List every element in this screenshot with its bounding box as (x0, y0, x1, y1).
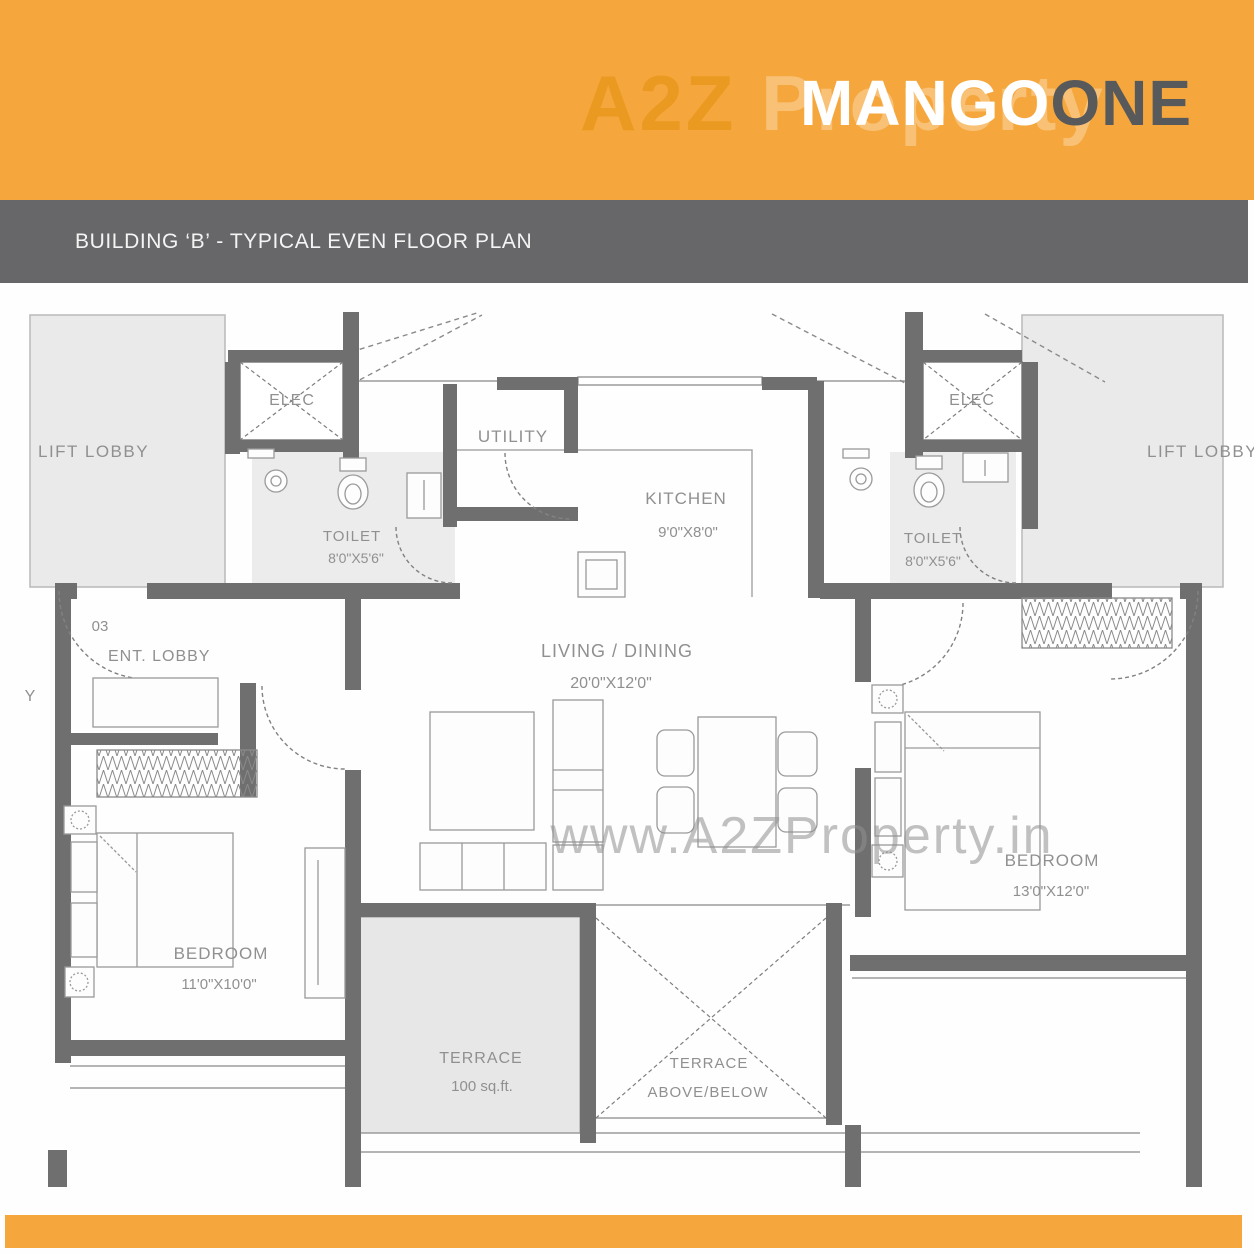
edge-cutoff-label: Y (25, 688, 36, 705)
unit-number-label: 03 (92, 618, 109, 635)
room-label-toilet-left: TOILET (323, 528, 381, 545)
floor-plan-drawing: www.A2ZProperty.in LIFT LOBBY LIFT LOBBY… (0, 0, 1254, 1254)
room-label-terrace-above-1: TERRACE (670, 1055, 749, 1072)
wc-tank-right (916, 456, 942, 469)
bedside-table (71, 903, 97, 957)
wall-segment (48, 1150, 67, 1187)
room-dims-toilet-right: 8'0"X5'6" (905, 553, 961, 569)
bedroom-right-door-arc (878, 603, 963, 688)
room-label-elec-right: ELEC (949, 392, 995, 409)
room-label-terrace: TERRACE (439, 1050, 522, 1067)
wall-segment (345, 590, 361, 690)
wall-segment (1186, 590, 1202, 1187)
wall-segment (228, 350, 359, 362)
room-dims-living-dining: 20'0"X12'0" (570, 675, 652, 692)
room-area-terrace: 100 sq.ft. (451, 1078, 513, 1095)
wall-segment (443, 507, 578, 521)
room-label-elec-left: ELEC (269, 392, 315, 409)
wall-segment (147, 583, 460, 599)
footer-band (5, 1215, 1242, 1248)
wall-segment (497, 377, 578, 390)
wall-segment (345, 770, 361, 917)
wall-segment (850, 955, 1202, 971)
wall-segment (905, 440, 1022, 452)
basin-icon-left (265, 470, 287, 492)
bedside-table (875, 722, 901, 772)
wall-segment (580, 903, 596, 1143)
kitchen-sink-basin (586, 560, 617, 589)
room-label-terrace-above-2: ABOVE/BELOW (647, 1084, 768, 1101)
wc-tank-left (340, 458, 366, 471)
wall-segment (225, 362, 240, 454)
rug (430, 712, 534, 830)
wall-segment (63, 733, 218, 745)
wall-segment (343, 312, 359, 458)
fan-box (64, 806, 96, 834)
living-left-door-arc (262, 686, 345, 769)
fan-box (872, 685, 903, 713)
room-label-bedroom-left: BEDROOM (174, 944, 269, 963)
wall-tick (843, 449, 869, 458)
cabinet-left (305, 848, 345, 998)
wardrobe-left (97, 750, 257, 797)
wall-segment (55, 1040, 360, 1056)
room-dims-toilet-left: 8'0"X5'6" (328, 550, 384, 566)
wall-segment (443, 384, 457, 527)
room-label-ent-lobby: ENT. LOBBY (108, 648, 210, 665)
room-label-living-dining: LIVING / DINING (541, 641, 693, 661)
basin-icon-right (850, 468, 872, 490)
room-label-lift-lobby-left: LIFT LOBBY (38, 442, 149, 461)
room-dims-bedroom-left: 11'0"X10'0" (181, 976, 256, 993)
dining-chair (778, 732, 817, 776)
wall-tick (248, 449, 274, 458)
sofa (420, 843, 546, 890)
wall-segment (345, 1125, 361, 1187)
dash-left-2 (352, 315, 482, 384)
room-label-utility: UTILITY (478, 427, 548, 446)
wardrobe-right (1022, 598, 1172, 648)
terrace-area-fill (359, 917, 580, 1133)
wall-segment (808, 381, 824, 598)
bedside-table (71, 842, 97, 892)
wall-segment (826, 903, 842, 1125)
wall-segment (855, 590, 871, 682)
wall-segment (905, 350, 1022, 362)
floor-plan-page: A2Z Property MANGOONE BUILDING ‘B’ - TYP… (0, 0, 1254, 1254)
wall-segment (845, 1125, 861, 1187)
kitchen-window (578, 377, 762, 385)
wall-segment (1022, 362, 1038, 529)
room-label-kitchen: KITCHEN (645, 489, 727, 508)
wall-segment (348, 903, 583, 917)
dash-right-1 (772, 314, 907, 384)
room-label-lift-lobby-right: LIFT LOBBY (1147, 442, 1254, 461)
room-dims-bedroom-right: 13'0"X12'0" (1013, 883, 1089, 900)
room-dims-kitchen: 9'0"X8'0" (658, 524, 718, 541)
room-label-toilet-right: TOILET (904, 530, 962, 547)
wall-segment (905, 312, 923, 458)
wall-segment (345, 903, 361, 1143)
dining-chair (657, 730, 694, 776)
entrance-left-door-arc (59, 591, 147, 679)
room-label-bedroom-right: BEDROOM (1005, 851, 1100, 870)
plan-watermark: www.A2ZProperty.in (549, 807, 1053, 865)
console-table (93, 678, 218, 727)
